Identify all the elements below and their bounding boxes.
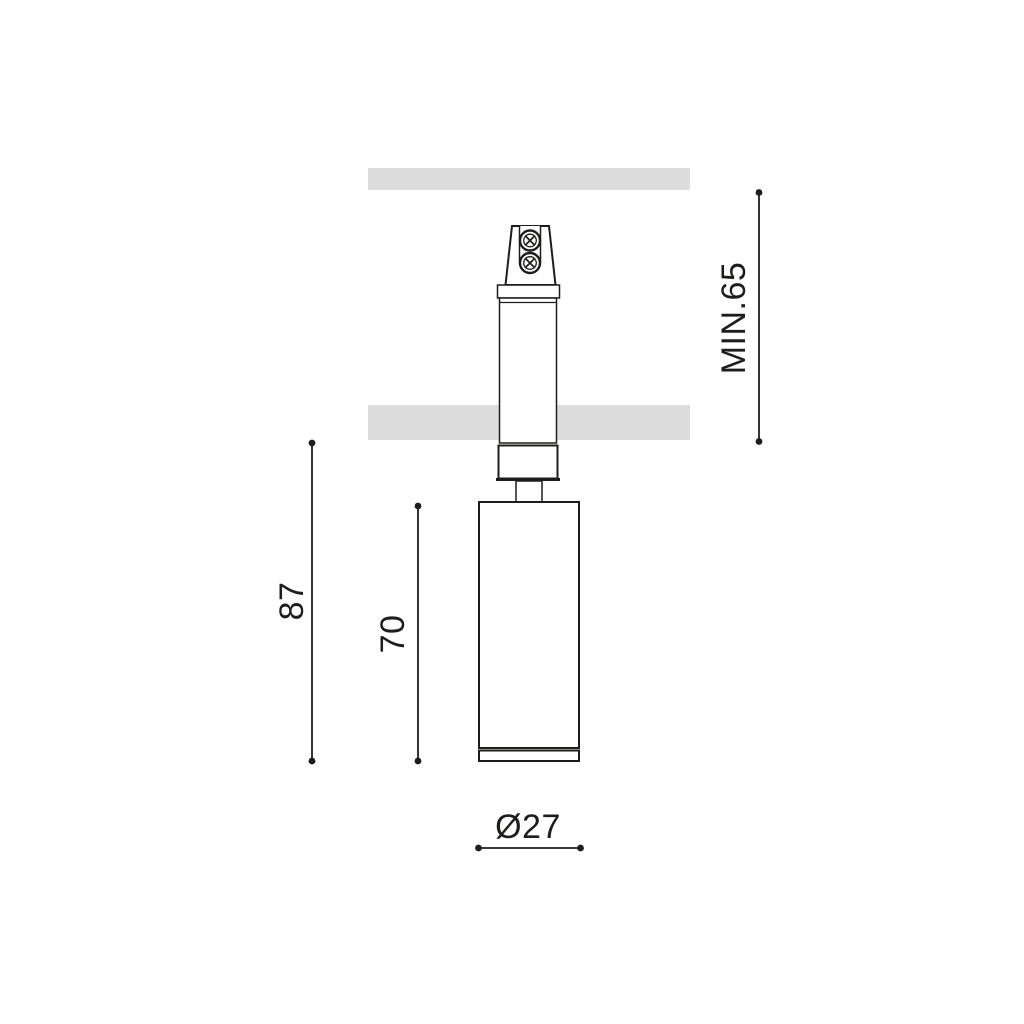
ceiling-panel-top bbox=[368, 168, 690, 190]
technical-drawing: MIN.65 87 70 Ø27 bbox=[0, 0, 1024, 1024]
cylinder-body bbox=[479, 502, 579, 748]
collar-neck bbox=[516, 481, 542, 502]
dimension-label-diameter: Ø27 bbox=[495, 808, 561, 846]
dimension-endpoint bbox=[415, 758, 422, 765]
dimension-label-min-recess: MIN.65 bbox=[715, 262, 753, 375]
phillips-screw-icon bbox=[520, 231, 540, 251]
connector-flange bbox=[498, 285, 560, 298]
dimension-endpoint bbox=[577, 845, 584, 852]
lens-rim bbox=[479, 751, 579, 762]
collar-body bbox=[499, 446, 558, 479]
dimension-endpoint bbox=[756, 189, 763, 196]
stem-tube bbox=[500, 298, 557, 443]
dimension-endpoint bbox=[309, 758, 316, 765]
dimension-label-body-height: 70 bbox=[374, 615, 412, 654]
dimension-endpoint bbox=[475, 845, 482, 852]
dimension-endpoint bbox=[309, 440, 316, 447]
suspension-stem bbox=[500, 298, 557, 443]
dimension-endpoint bbox=[756, 438, 763, 445]
dimension-label-overall-height: 87 bbox=[273, 582, 311, 621]
phillips-screw-icon bbox=[520, 253, 540, 273]
dimension-endpoint bbox=[415, 503, 422, 510]
spotlight-body bbox=[479, 502, 579, 761]
